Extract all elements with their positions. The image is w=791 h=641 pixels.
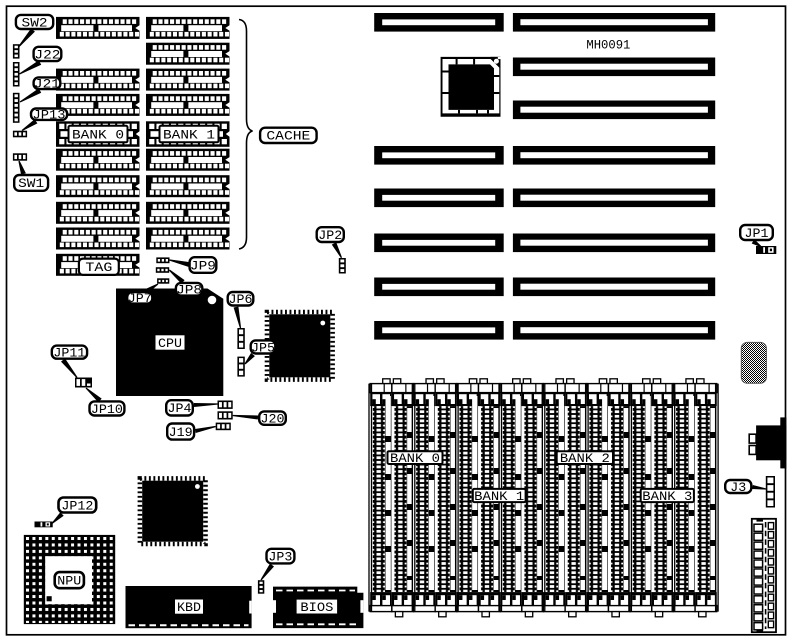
svg-text:BANK 3: BANK 3 xyxy=(642,490,692,504)
svg-text:JP3: JP3 xyxy=(268,550,292,564)
svg-text:KBD: KBD xyxy=(177,601,201,615)
svg-text:JP10: JP10 xyxy=(91,403,123,417)
svg-text:JP8: JP8 xyxy=(176,284,202,298)
svg-text:J22: J22 xyxy=(34,48,60,62)
svg-text:JP6: JP6 xyxy=(229,293,253,307)
svg-text:J19: J19 xyxy=(169,426,193,440)
svg-text:BIOS: BIOS xyxy=(300,601,333,615)
svg-text:BANK 2: BANK 2 xyxy=(560,452,610,466)
svg-text:J20: J20 xyxy=(261,412,285,426)
svg-text:JP2: JP2 xyxy=(318,229,342,243)
svg-text:JP4: JP4 xyxy=(168,402,192,416)
svg-text:SW2: SW2 xyxy=(22,16,48,30)
svg-text:SW1: SW1 xyxy=(18,177,44,191)
svg-text:BANK 1: BANK 1 xyxy=(163,128,215,142)
svg-text:JP7: JP7 xyxy=(128,292,152,306)
svg-text:CACHE: CACHE xyxy=(266,130,310,144)
svg-text:JP1: JP1 xyxy=(745,227,769,241)
svg-text:JP12: JP12 xyxy=(61,499,93,513)
svg-text:BANK 0: BANK 0 xyxy=(72,128,124,142)
svg-text:CPU: CPU xyxy=(158,337,182,351)
svg-text:JP5: JP5 xyxy=(251,341,275,355)
svg-text:J3: J3 xyxy=(730,481,746,495)
svg-text:JP9: JP9 xyxy=(190,259,216,273)
svg-text:TAG: TAG xyxy=(85,261,112,275)
svg-text:JP11: JP11 xyxy=(53,346,85,360)
svg-text:MH0091: MH0091 xyxy=(586,39,630,53)
svg-text:BANK 0: BANK 0 xyxy=(390,452,440,466)
svg-text:JP13: JP13 xyxy=(33,109,66,123)
svg-text:NPU: NPU xyxy=(57,574,81,588)
svg-text:BANK 1: BANK 1 xyxy=(474,490,524,504)
